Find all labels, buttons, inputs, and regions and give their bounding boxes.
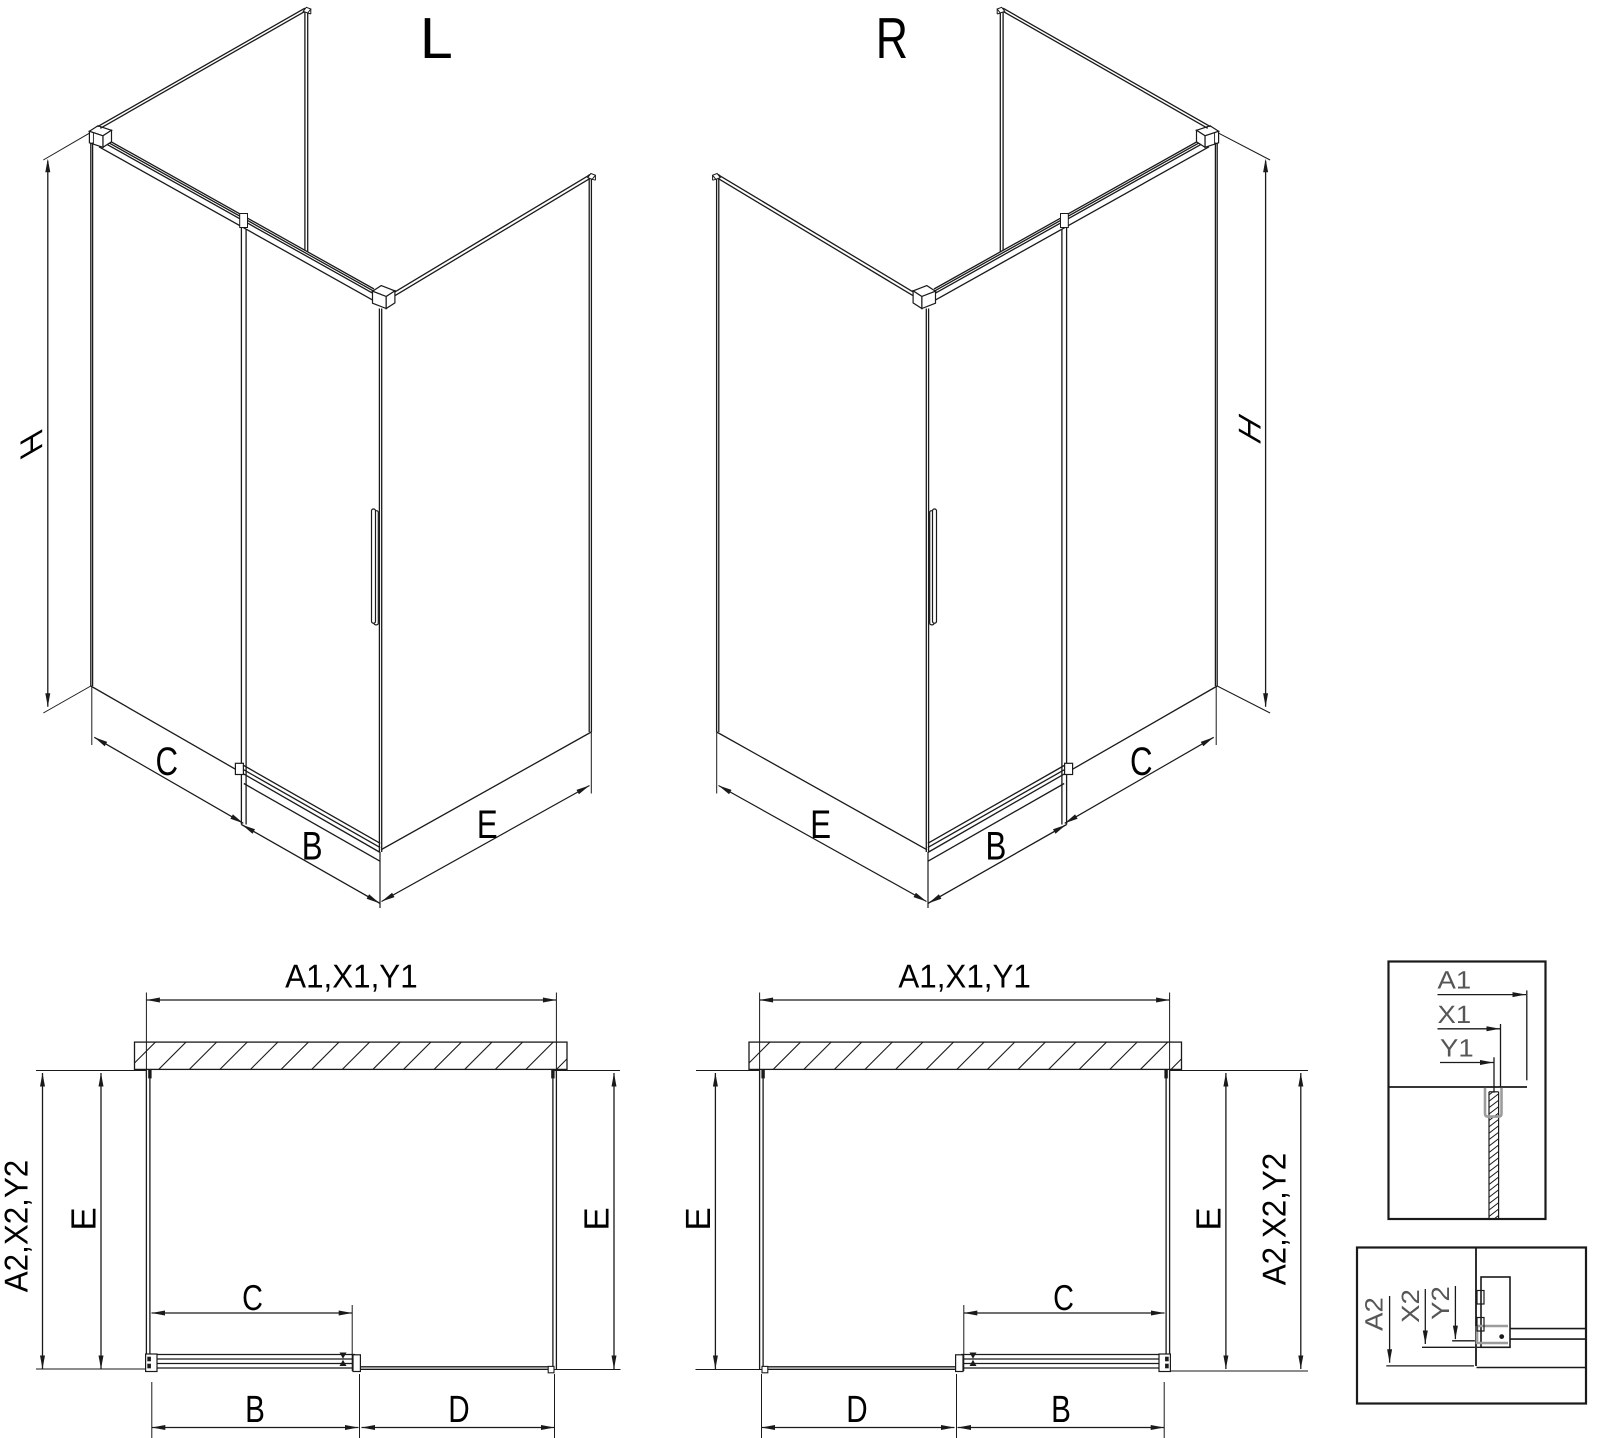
svg-text:C: C [242,1277,263,1318]
svg-text:C: C [1053,1277,1074,1318]
svg-text:A1,X1,Y1: A1,X1,Y1 [898,958,1030,995]
svg-text:R: R [876,6,908,71]
svg-text:C: C [155,740,178,784]
svg-text:A1: A1 [1438,967,1472,995]
svg-text:D: D [448,1389,469,1431]
svg-text:E: E [1190,1207,1229,1230]
svg-text:E: E [679,1207,718,1230]
svg-text:B: B [1051,1389,1071,1431]
svg-text:B: B [985,824,1006,868]
svg-text:X2: X2 [1397,1289,1425,1323]
svg-text:A2,X2,Y2: A2,X2,Y2 [0,1160,35,1292]
svg-text:L: L [420,6,453,71]
svg-text:E: E [810,803,831,847]
svg-text:Y1: Y1 [1440,1035,1474,1063]
svg-text:X1: X1 [1438,1001,1472,1029]
svg-text:C: C [1130,740,1153,784]
svg-text:E: E [65,1207,104,1230]
svg-text:B: B [245,1389,265,1431]
svg-text:E: E [578,1207,617,1230]
svg-text:A2,X2,Y2: A2,X2,Y2 [1255,1153,1292,1285]
svg-text:D: D [846,1389,867,1431]
svg-text:E: E [477,803,498,847]
svg-text:A2: A2 [1361,1297,1389,1331]
svg-text:A1,X1,Y1: A1,X1,Y1 [285,958,417,995]
svg-text:Y2: Y2 [1427,1286,1455,1320]
svg-text:B: B [302,824,323,868]
